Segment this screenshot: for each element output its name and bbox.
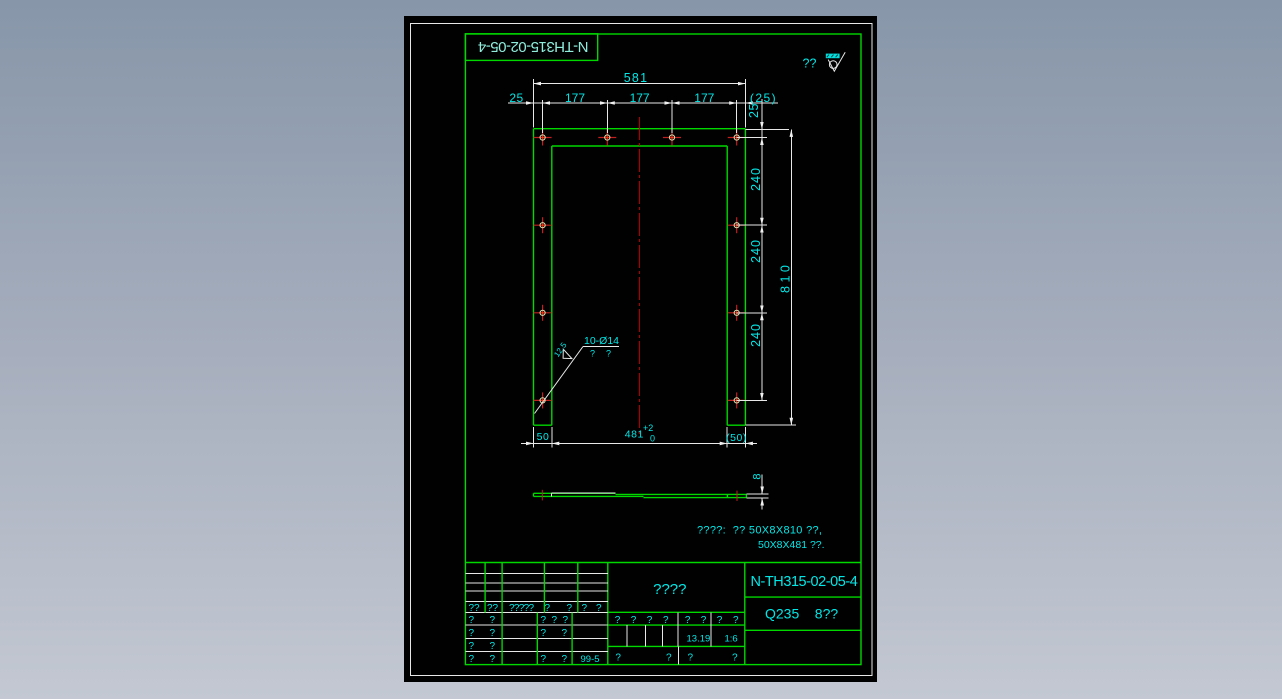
svg-text:(50): (50): [726, 432, 747, 444]
svg-text:177: 177: [630, 91, 650, 105]
svg-text:?: ?: [541, 654, 547, 665]
svg-text:?: ?: [545, 603, 551, 614]
svg-text:?: ?: [688, 653, 694, 664]
svg-text:8: 8: [752, 473, 764, 479]
svg-text:810: 810: [779, 262, 793, 293]
svg-text:?: ?: [582, 603, 588, 614]
svg-text:25: 25: [747, 103, 761, 118]
svg-text:240: 240: [749, 239, 763, 263]
svg-text:N-TH315-02-05-4: N-TH315-02-05-4: [751, 574, 858, 590]
svg-text:?: ?: [469, 654, 475, 665]
svg-text:?: ?: [647, 615, 653, 626]
svg-text:?: ?: [663, 615, 669, 626]
svg-text:50: 50: [537, 431, 550, 443]
svg-text:?: ?: [631, 615, 637, 626]
svg-text:?: ?: [490, 641, 496, 652]
svg-text:25: 25: [509, 91, 523, 105]
svg-text:?: ?: [469, 615, 475, 626]
svg-text:?: ?: [590, 349, 595, 359]
svg-text:?????: ?????: [509, 603, 534, 614]
svg-text:?: ?: [685, 615, 691, 626]
svg-text:?: ?: [469, 628, 475, 639]
svg-text:??: ??: [487, 603, 499, 614]
svg-text:50X8X481 ??.: 50X8X481 ??.: [758, 539, 825, 551]
svg-text:+2: +2: [643, 423, 653, 433]
svg-text:?: ?: [701, 615, 707, 626]
svg-text:?: ?: [666, 653, 672, 664]
svg-text:?: ?: [490, 654, 496, 665]
svg-text:Q235 8??: Q235 8??: [765, 605, 838, 621]
svg-text:??: ??: [469, 603, 481, 614]
svg-text:?: ?: [567, 603, 573, 614]
svg-text:240: 240: [749, 323, 763, 347]
svg-text:581: 581: [624, 71, 648, 85]
svg-text:?: ?: [717, 615, 723, 626]
svg-text:????: ?? 50X8X810 ??,: ????: ?? 50X8X810 ??,: [697, 525, 822, 537]
svg-text:13.19: 13.19: [687, 634, 711, 645]
svg-text:177: 177: [565, 91, 585, 105]
svg-text:?: ?: [606, 349, 611, 359]
svg-text:?: ?: [469, 641, 475, 652]
svg-text:?: ?: [541, 628, 547, 639]
svg-text:?: ?: [732, 653, 738, 664]
svg-text:?: ?: [552, 615, 558, 626]
svg-text:??: ??: [803, 57, 817, 71]
svg-text:?: ?: [563, 615, 569, 626]
svg-text:?: ?: [541, 615, 547, 626]
svg-text:?: ?: [490, 615, 496, 626]
svg-text:N-TH315-02-05-4: N-TH315-02-05-4: [478, 38, 588, 55]
svg-text:?: ?: [733, 615, 739, 626]
svg-text:?: ?: [615, 653, 621, 664]
svg-text:240: 240: [749, 167, 763, 191]
svg-text:481: 481: [625, 428, 644, 440]
svg-text:1:6: 1:6: [725, 634, 738, 645]
svg-text:????: ????: [653, 581, 686, 598]
svg-text:?: ?: [596, 603, 602, 614]
svg-text:177: 177: [694, 91, 714, 105]
svg-text:?: ?: [490, 628, 496, 639]
svg-text:?: ?: [562, 654, 568, 665]
svg-text:10-Ø14: 10-Ø14: [584, 335, 619, 347]
svg-text:?: ?: [562, 628, 568, 639]
svg-text:(25): (25): [750, 91, 777, 105]
svg-text:?: ?: [615, 615, 621, 626]
svg-text:12.5: 12.5: [552, 340, 569, 358]
svg-text:99-5: 99-5: [581, 654, 600, 665]
svg-text:0: 0: [650, 434, 655, 444]
